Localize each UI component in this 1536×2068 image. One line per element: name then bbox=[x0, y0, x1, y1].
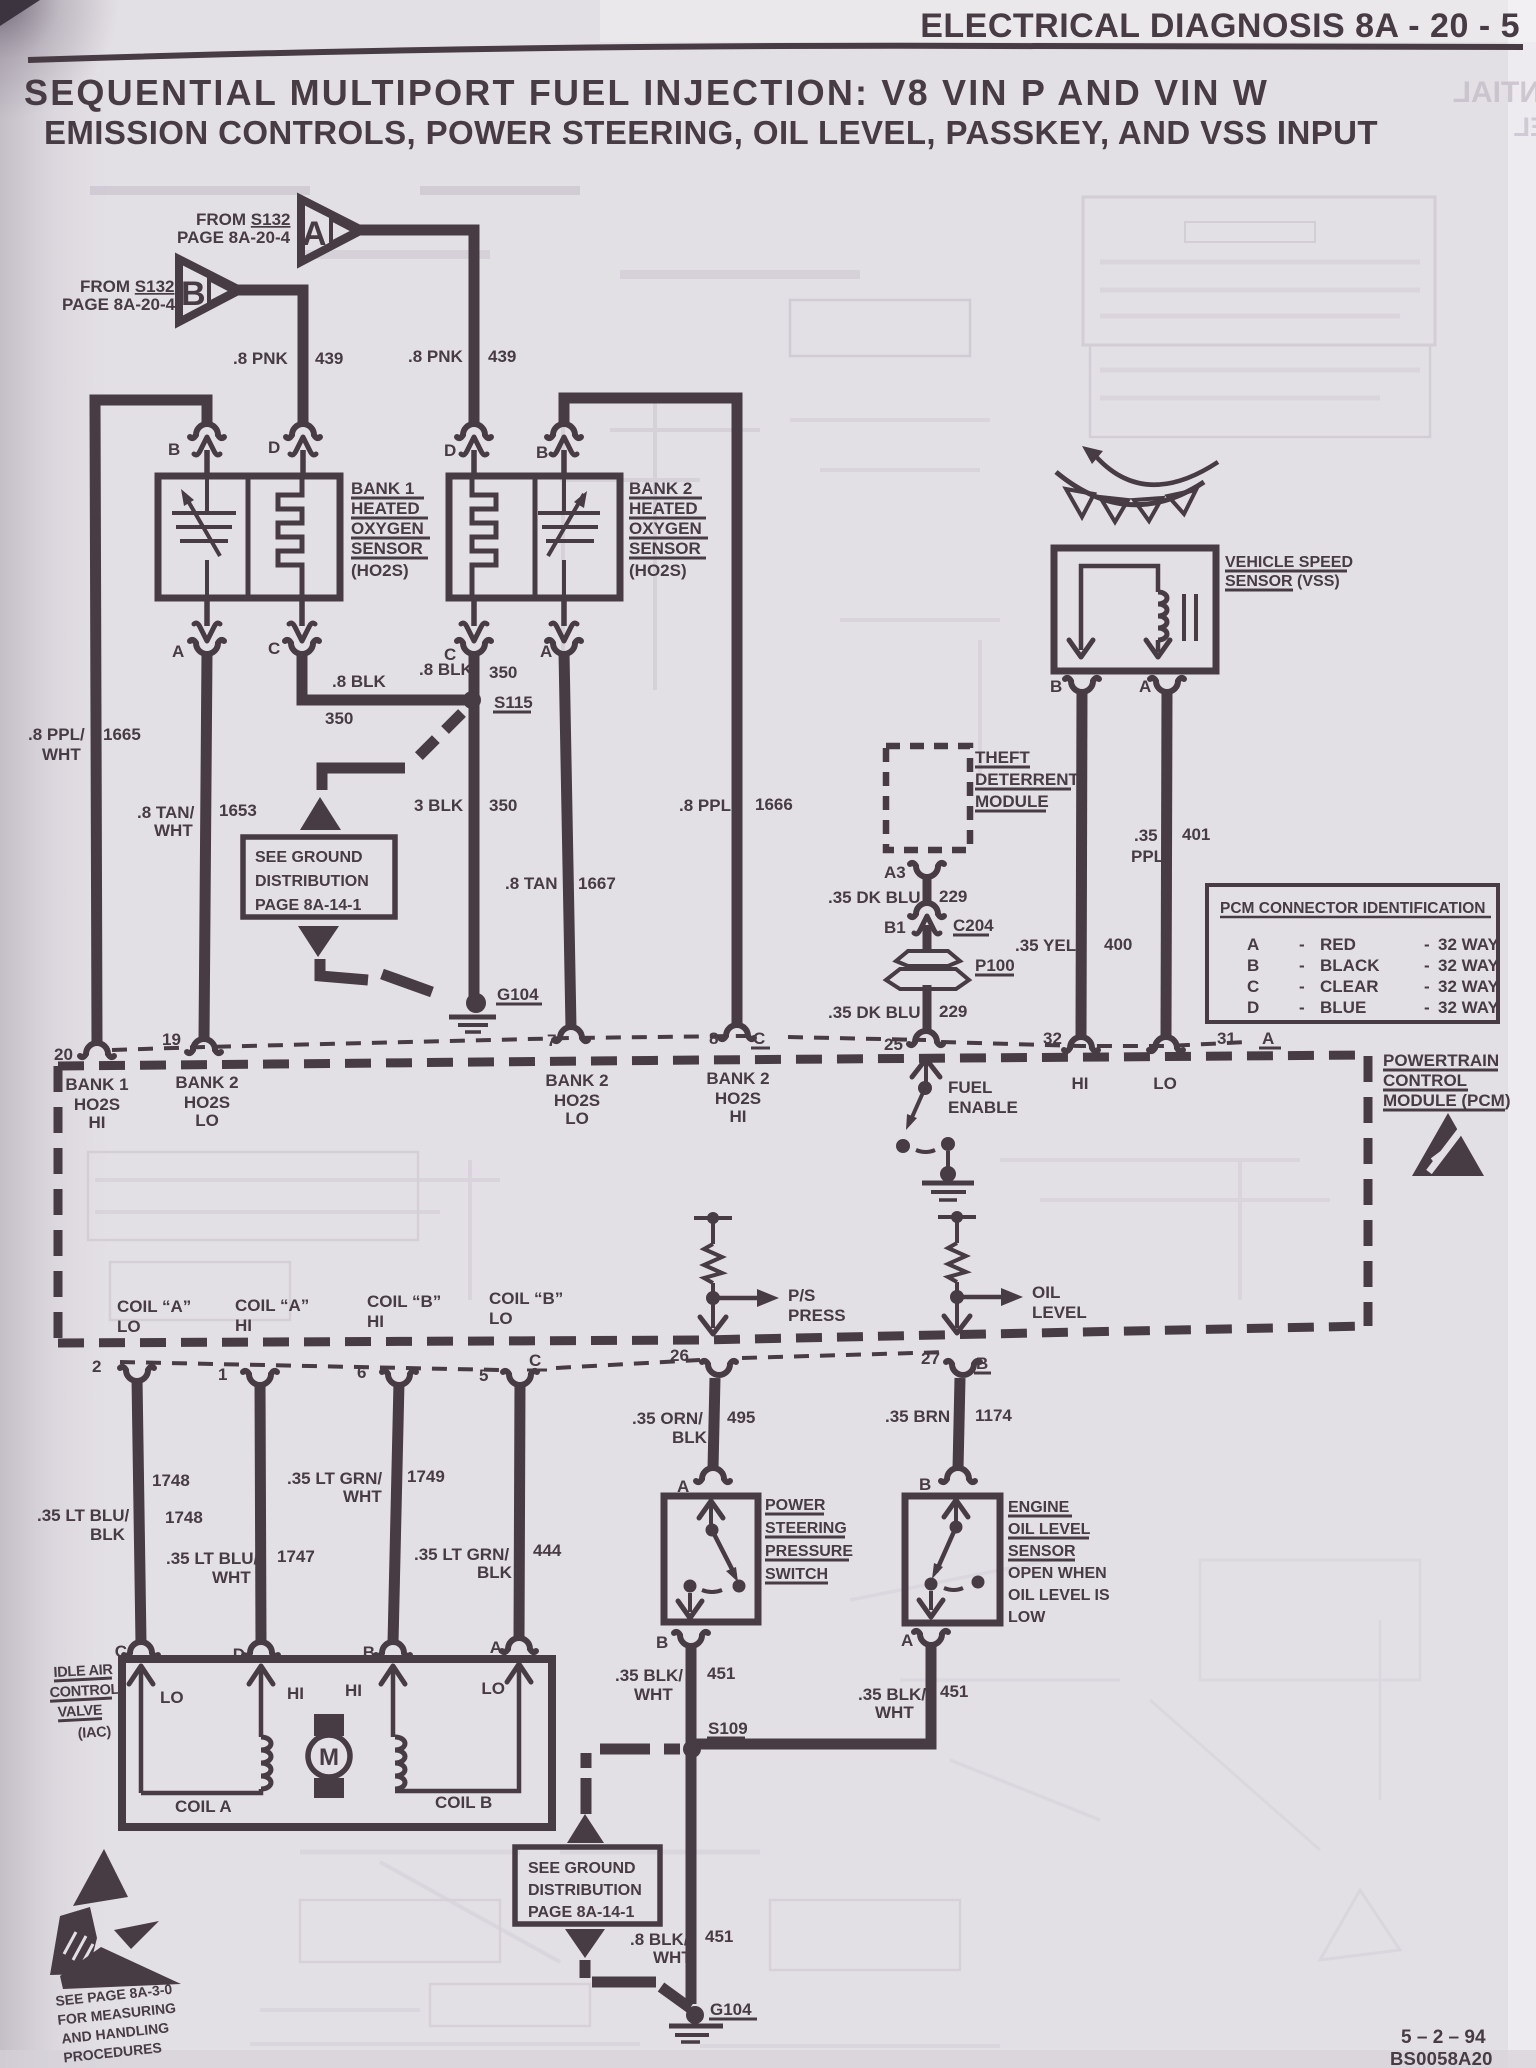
svg-text:A: A bbox=[1247, 935, 1259, 954]
svg-text:.8 BLK: .8 BLK bbox=[332, 672, 387, 691]
svg-text:STEERING: STEERING bbox=[765, 1520, 847, 1537]
svg-text:LO: LO bbox=[195, 1111, 219, 1130]
svg-text:WHT: WHT bbox=[42, 745, 81, 764]
svg-text:6: 6 bbox=[357, 1363, 366, 1382]
svg-text:VEHICLE SPEED: VEHICLE SPEED bbox=[1225, 554, 1353, 571]
svg-text:COIL A: COIL A bbox=[175, 1797, 232, 1816]
svg-text:OPEN WHEN: OPEN WHEN bbox=[1008, 1565, 1107, 1582]
svg-text:D: D bbox=[444, 441, 456, 460]
svg-text:RED: RED bbox=[1320, 935, 1356, 954]
svg-text:WHT: WHT bbox=[653, 1948, 692, 1967]
svg-text:32 WAY: 32 WAY bbox=[1438, 935, 1499, 954]
svg-text:A: A bbox=[1262, 1029, 1274, 1048]
svg-text:HO2S: HO2S bbox=[554, 1091, 600, 1110]
svg-text:CLEAR: CLEAR bbox=[1320, 977, 1379, 996]
svg-text:BLK: BLK bbox=[477, 1563, 513, 1582]
svg-text:C: C bbox=[529, 1351, 541, 1370]
svg-text:HI: HI bbox=[235, 1316, 252, 1335]
svg-text:.8 TAN: .8 TAN bbox=[505, 874, 558, 893]
svg-text:26: 26 bbox=[670, 1346, 689, 1365]
svg-text:444: 444 bbox=[533, 1541, 562, 1560]
svg-text:.8 TAN/: .8 TAN/ bbox=[137, 803, 195, 822]
svg-text:LO: LO bbox=[489, 1309, 513, 1328]
svg-text:.35 LT GRN/: .35 LT GRN/ bbox=[414, 1545, 509, 1564]
svg-text:(HO2S): (HO2S) bbox=[629, 561, 687, 580]
svg-text:HEATED: HEATED bbox=[351, 499, 420, 518]
svg-text:EMISSION CONTROLS, POWER STEER: EMISSION CONTROLS, POWER STEERING, OIL L… bbox=[44, 114, 1378, 151]
svg-text:.8 PNK: .8 PNK bbox=[408, 347, 464, 366]
svg-text:POWERTRAIN: POWERTRAIN bbox=[1383, 1051, 1499, 1070]
svg-text:.35 BRN: .35 BRN bbox=[885, 1407, 950, 1426]
svg-text:1174: 1174 bbox=[975, 1406, 1012, 1425]
svg-text:A: A bbox=[1139, 677, 1151, 696]
svg-text:LO: LO bbox=[117, 1317, 141, 1336]
svg-text:SEE GROUND: SEE GROUND bbox=[255, 849, 363, 866]
svg-text:229: 229 bbox=[939, 1002, 967, 1021]
svg-text:-: - bbox=[1299, 998, 1305, 1017]
svg-text:B: B bbox=[181, 275, 206, 313]
svg-text:A: A bbox=[490, 1638, 502, 1657]
svg-text:-: - bbox=[1424, 977, 1430, 996]
svg-text:FUEL: FUEL bbox=[948, 1078, 992, 1097]
svg-text:451: 451 bbox=[705, 1927, 733, 1946]
svg-text:OIL LEVEL: OIL LEVEL bbox=[1008, 1521, 1091, 1538]
svg-text:(IAC): (IAC) bbox=[77, 1724, 111, 1742]
svg-text:B: B bbox=[1247, 956, 1259, 975]
svg-text:439: 439 bbox=[315, 349, 343, 368]
svg-text:LOW: LOW bbox=[1008, 1609, 1046, 1626]
svg-text:229: 229 bbox=[939, 887, 967, 906]
svg-text:SENSOR: SENSOR bbox=[629, 539, 701, 558]
svg-text:HEATED: HEATED bbox=[629, 499, 698, 518]
svg-text:BLK: BLK bbox=[90, 1525, 126, 1544]
svg-text:COIL “B”: COIL “B” bbox=[367, 1292, 441, 1311]
svg-text:COIL “B”: COIL “B” bbox=[489, 1289, 563, 1308]
svg-text:.35 BLK/: .35 BLK/ bbox=[858, 1685, 926, 1704]
svg-text:A: A bbox=[540, 642, 552, 661]
svg-text:1: 1 bbox=[218, 1365, 227, 1384]
svg-text:.35 YEL: .35 YEL bbox=[1015, 936, 1076, 955]
svg-text:20: 20 bbox=[54, 1045, 73, 1064]
svg-text:B: B bbox=[976, 1354, 988, 1373]
svg-text:25: 25 bbox=[884, 1035, 903, 1054]
svg-text:HO2S: HO2S bbox=[184, 1093, 230, 1112]
svg-text:400: 400 bbox=[1104, 935, 1132, 954]
svg-text:-: - bbox=[1299, 956, 1305, 975]
svg-text:COIL “A”: COIL “A” bbox=[235, 1296, 309, 1315]
svg-text:D: D bbox=[268, 438, 280, 457]
svg-text:A: A bbox=[901, 1631, 913, 1650]
svg-text:BS0058A20: BS0058A20 bbox=[1390, 2048, 1493, 2068]
svg-text:PRESS: PRESS bbox=[788, 1306, 846, 1325]
svg-text:COIL “A”: COIL “A” bbox=[117, 1297, 191, 1316]
svg-text:G104: G104 bbox=[497, 985, 539, 1004]
svg-text:ENGINE: ENGINE bbox=[1008, 1499, 1070, 1516]
svg-text:DISTRIBUTION: DISTRIBUTION bbox=[255, 873, 369, 890]
svg-text:A: A bbox=[302, 215, 327, 253]
svg-text:(HO2S): (HO2S) bbox=[351, 561, 409, 580]
svg-text:LO: LO bbox=[481, 1679, 505, 1698]
svg-text:32 WAY: 32 WAY bbox=[1438, 977, 1499, 996]
svg-text:31: 31 bbox=[1217, 1029, 1236, 1048]
svg-text:S109: S109 bbox=[708, 1719, 748, 1738]
svg-text:HO2S: HO2S bbox=[74, 1095, 120, 1114]
svg-text:WHT: WHT bbox=[634, 1685, 673, 1704]
svg-text:C: C bbox=[268, 639, 280, 658]
svg-text:350: 350 bbox=[489, 663, 517, 682]
svg-text:PAGE 8A-20-4: PAGE 8A-20-4 bbox=[62, 295, 176, 314]
svg-text:.35 LT GRN/: .35 LT GRN/ bbox=[287, 1469, 382, 1488]
svg-text:27: 27 bbox=[921, 1349, 940, 1368]
svg-text:19: 19 bbox=[162, 1030, 181, 1049]
svg-text:P/S: P/S bbox=[788, 1286, 815, 1305]
svg-text:BANK 2: BANK 2 bbox=[629, 479, 692, 498]
svg-text:HI: HI bbox=[89, 1113, 106, 1132]
svg-text:HI: HI bbox=[287, 1684, 304, 1703]
svg-text:WHT: WHT bbox=[154, 821, 193, 840]
svg-text:8: 8 bbox=[709, 1029, 718, 1048]
svg-text:HO2S: HO2S bbox=[715, 1089, 761, 1108]
svg-text:5 – 2 – 94: 5 – 2 – 94 bbox=[1401, 2027, 1486, 2048]
svg-text:D: D bbox=[1247, 998, 1259, 1017]
svg-text:32 WAY: 32 WAY bbox=[1438, 956, 1499, 975]
svg-text:OIL LEVEL IS: OIL LEVEL IS bbox=[1008, 1587, 1110, 1604]
svg-text:PRESSURE: PRESSURE bbox=[765, 1543, 853, 1560]
svg-text:PAGE 8A-14-1: PAGE 8A-14-1 bbox=[528, 1904, 635, 1921]
svg-text:451: 451 bbox=[707, 1664, 735, 1683]
svg-text:BANK 1: BANK 1 bbox=[65, 1075, 128, 1094]
svg-text:OIL: OIL bbox=[1032, 1283, 1060, 1302]
svg-text:495: 495 bbox=[727, 1408, 755, 1427]
svg-text:-: - bbox=[1424, 998, 1430, 1017]
svg-text:B1: B1 bbox=[884, 918, 906, 937]
svg-text:B: B bbox=[919, 1475, 931, 1494]
svg-text:ELECTRICAL DIAGNOSIS 8A - 20 -: ELECTRICAL DIAGNOSIS 8A - 20 - 5 bbox=[920, 7, 1520, 45]
svg-text:THEFT: THEFT bbox=[975, 748, 1030, 767]
svg-text:-: - bbox=[1299, 935, 1305, 954]
svg-text:SEQUENTIAL: SEQUENTIAL bbox=[1453, 76, 1536, 109]
svg-text:451: 451 bbox=[940, 1682, 968, 1701]
svg-text:-: - bbox=[1424, 956, 1430, 975]
svg-text:A3: A3 bbox=[884, 863, 906, 882]
svg-text:HI: HI bbox=[730, 1107, 747, 1126]
svg-text:DETERRENT: DETERRENT bbox=[975, 770, 1080, 789]
svg-text:1749: 1749 bbox=[407, 1467, 445, 1486]
svg-text:PAGE 8A-14-1: PAGE 8A-14-1 bbox=[255, 897, 362, 914]
svg-text:P100: P100 bbox=[975, 956, 1015, 975]
svg-text:BANK 1: BANK 1 bbox=[351, 479, 414, 498]
svg-text:POWER: POWER bbox=[765, 1497, 826, 1514]
svg-text:SWITCH: SWITCH bbox=[765, 1566, 828, 1583]
svg-text:HI: HI bbox=[345, 1681, 362, 1700]
svg-text:PPL: PPL bbox=[1131, 847, 1164, 866]
svg-text:.8 BLK/: .8 BLK/ bbox=[630, 1930, 689, 1949]
svg-text:3 BLK: 3 BLK bbox=[414, 796, 464, 815]
svg-text:HI: HI bbox=[1072, 1074, 1089, 1093]
svg-text:OXYGEN: OXYGEN bbox=[351, 519, 424, 538]
svg-text:439: 439 bbox=[488, 347, 516, 366]
svg-text:7: 7 bbox=[547, 1031, 556, 1050]
svg-text:.35 ORN/: .35 ORN/ bbox=[632, 1409, 703, 1428]
svg-text:B: B bbox=[536, 443, 548, 462]
svg-text:BLK: BLK bbox=[672, 1428, 708, 1447]
svg-text:32 WAY: 32 WAY bbox=[1438, 998, 1499, 1017]
svg-text:B: B bbox=[168, 440, 180, 459]
svg-text:-: - bbox=[1424, 935, 1430, 954]
svg-text:.8 PPL: .8 PPL bbox=[679, 796, 731, 815]
svg-text:.8 BLK: .8 BLK bbox=[419, 660, 474, 679]
svg-text:SENSOR: SENSOR bbox=[1008, 1543, 1076, 1560]
svg-text:PAGE 8A-20-4: PAGE 8A-20-4 bbox=[177, 228, 291, 247]
svg-text:C204: C204 bbox=[953, 916, 994, 935]
svg-text:350: 350 bbox=[325, 709, 353, 728]
svg-text:401: 401 bbox=[1182, 825, 1210, 844]
svg-text:1665: 1665 bbox=[103, 725, 141, 744]
svg-text:1748: 1748 bbox=[152, 1471, 190, 1490]
svg-text:MODULE: MODULE bbox=[975, 792, 1049, 811]
svg-text:A: A bbox=[172, 642, 184, 661]
svg-text:MODULE (PCM): MODULE (PCM) bbox=[1383, 1091, 1510, 1110]
svg-text:SEE GROUND: SEE GROUND bbox=[528, 1860, 636, 1877]
svg-text:BANK 2: BANK 2 bbox=[545, 1071, 608, 1090]
svg-text:BANK 2: BANK 2 bbox=[706, 1069, 769, 1088]
svg-text:LO: LO bbox=[565, 1109, 589, 1128]
svg-text:BLACK: BLACK bbox=[1320, 956, 1380, 975]
svg-text:32: 32 bbox=[1043, 1029, 1062, 1048]
svg-text:-: - bbox=[1299, 977, 1305, 996]
svg-text:B: B bbox=[656, 1633, 668, 1652]
svg-text:.35 LT BLU/: .35 LT BLU/ bbox=[37, 1506, 130, 1525]
svg-text:M: M bbox=[319, 1744, 339, 1771]
svg-text:2: 2 bbox=[92, 1357, 101, 1376]
svg-text:BANK 2: BANK 2 bbox=[175, 1073, 238, 1092]
svg-text:WHT: WHT bbox=[343, 1487, 382, 1506]
svg-text:.35 BLK/: .35 BLK/ bbox=[615, 1666, 683, 1685]
svg-text:.35 DK BLU: .35 DK BLU bbox=[828, 1003, 921, 1022]
svg-text:1747: 1747 bbox=[277, 1547, 315, 1566]
svg-text:C: C bbox=[1247, 977, 1259, 996]
svg-text:1667: 1667 bbox=[578, 874, 616, 893]
svg-text:LO: LO bbox=[160, 1688, 184, 1707]
svg-text:.35 DK BLU: .35 DK BLU bbox=[828, 888, 921, 907]
svg-text:LO: LO bbox=[1153, 1074, 1177, 1093]
svg-text:FUEL: FUEL bbox=[1514, 112, 1536, 142]
svg-text:OXYGEN: OXYGEN bbox=[629, 519, 702, 538]
svg-text:1666: 1666 bbox=[755, 795, 793, 814]
svg-text:S115: S115 bbox=[494, 693, 533, 712]
svg-text:WHT: WHT bbox=[212, 1568, 251, 1587]
svg-text:COIL B: COIL B bbox=[435, 1793, 492, 1812]
svg-text:1748: 1748 bbox=[165, 1508, 203, 1527]
svg-text:BLUE: BLUE bbox=[1320, 998, 1366, 1017]
svg-text:5: 5 bbox=[479, 1366, 488, 1385]
svg-text:WHT: WHT bbox=[875, 1703, 914, 1722]
svg-text:1653: 1653 bbox=[219, 801, 257, 820]
svg-text:SENSOR: SENSOR bbox=[351, 539, 423, 558]
svg-text:ENABLE: ENABLE bbox=[948, 1098, 1018, 1117]
svg-text:DISTRIBUTION: DISTRIBUTION bbox=[528, 1882, 642, 1899]
svg-text:SEQUENTIAL MULTIPORT FUEL INJE: SEQUENTIAL MULTIPORT FUEL INJECTION: V8 … bbox=[24, 72, 1269, 113]
svg-text:FROM S132: FROM S132 bbox=[196, 210, 290, 229]
svg-text:350: 350 bbox=[489, 796, 517, 815]
svg-text:.8 PNK: .8 PNK bbox=[233, 349, 289, 368]
svg-text:LEVEL: LEVEL bbox=[1032, 1303, 1087, 1322]
svg-text:.8 PPL/: .8 PPL/ bbox=[28, 725, 85, 744]
svg-text:HI: HI bbox=[367, 1312, 384, 1331]
svg-text:.35 LT BLU/: .35 LT BLU/ bbox=[166, 1549, 259, 1568]
svg-text:FROM S132: FROM S132 bbox=[80, 277, 174, 296]
svg-text:CONTROL: CONTROL bbox=[1383, 1071, 1467, 1090]
svg-text:PCM CONNECTOR IDENTIFICATION: PCM CONNECTOR IDENTIFICATION bbox=[1220, 900, 1486, 917]
svg-text:G104: G104 bbox=[710, 2000, 752, 2019]
svg-text:C: C bbox=[753, 1029, 765, 1048]
svg-text:SENSOR (VSS): SENSOR (VSS) bbox=[1225, 573, 1340, 590]
svg-text:B: B bbox=[1050, 677, 1062, 696]
svg-text:.35: .35 bbox=[1134, 826, 1158, 845]
